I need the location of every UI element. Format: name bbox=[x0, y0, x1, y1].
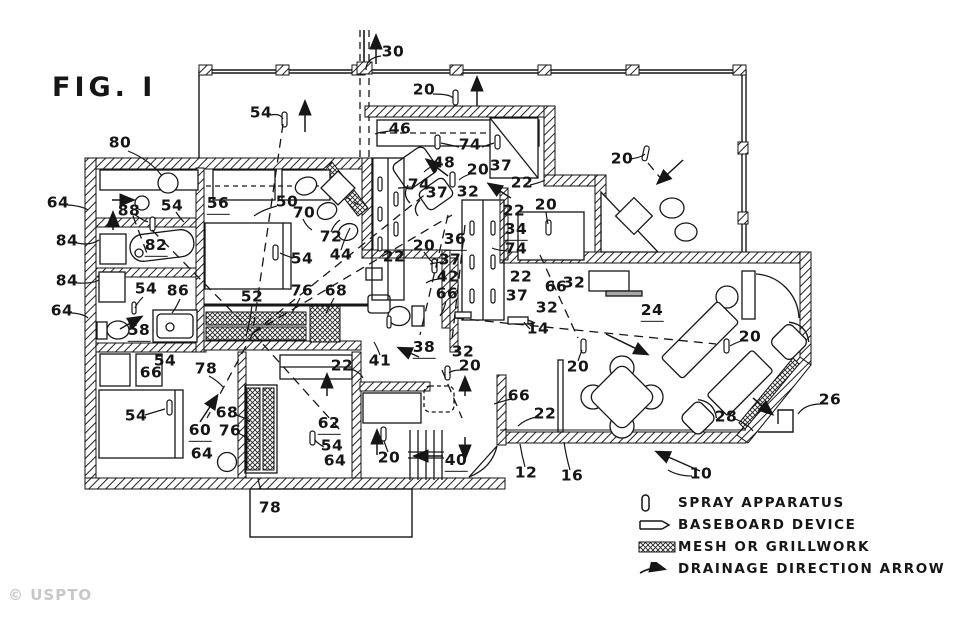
ref-label-44: 44 bbox=[330, 247, 353, 263]
spray-apparatus-icon bbox=[638, 493, 678, 513]
mesh-grillwork-icon bbox=[638, 540, 678, 554]
legend-label: MESH OR GRILLWORK bbox=[678, 539, 870, 555]
ref-label-68: 68 bbox=[216, 405, 239, 421]
ref-label-20: 20 bbox=[567, 359, 590, 375]
ref-label-22: 22 bbox=[503, 203, 526, 219]
ref-label-30: 30 bbox=[382, 44, 405, 60]
ref-label-20: 20 bbox=[413, 82, 436, 98]
ref-label-22: 22 bbox=[383, 249, 406, 265]
ref-label-20: 20 bbox=[611, 151, 634, 167]
ref-label-68: 68 bbox=[325, 283, 348, 299]
ref-label-54: 54 bbox=[125, 408, 148, 424]
ref-label-64: 64 bbox=[51, 303, 74, 319]
ref-label-20: 20 bbox=[535, 197, 558, 213]
ref-label-14: 14 bbox=[527, 321, 550, 337]
ref-label-74: 74 bbox=[505, 241, 528, 257]
ref-label-20: 20 bbox=[378, 450, 401, 466]
ref-label-20: 20 bbox=[739, 329, 762, 345]
ref-label-84: 84 bbox=[56, 233, 79, 249]
ref-label-64: 64 bbox=[324, 453, 347, 469]
ref-label-28: 28 bbox=[715, 409, 738, 425]
ref-label-58: 58 bbox=[128, 323, 151, 342]
ref-label-22: 22 bbox=[510, 269, 533, 285]
ref-label-22: 22 bbox=[534, 406, 557, 422]
legend-label: BASEBOARD DEVICE bbox=[678, 517, 856, 533]
ref-label-32: 32 bbox=[457, 184, 480, 200]
ref-label-66: 66 bbox=[436, 286, 459, 302]
patent-figure: FIG. I 305420208046744820372274373222206… bbox=[0, 0, 962, 619]
uspto-watermark: © USPTO bbox=[8, 586, 92, 604]
ref-label-72: 72 bbox=[320, 229, 343, 245]
ref-label-64: 64 bbox=[47, 195, 70, 211]
ref-label-52: 52 bbox=[241, 289, 264, 305]
legend: SPRAY APPARATUS BASEBOARD DEVICE MESH OR… bbox=[638, 492, 945, 580]
ref-label-10: 10 bbox=[690, 466, 713, 482]
ref-label-78: 78 bbox=[195, 361, 218, 377]
ref-label-88: 88 bbox=[118, 203, 141, 219]
ref-label-64: 64 bbox=[191, 446, 214, 462]
ref-label-20: 20 bbox=[413, 238, 436, 254]
ref-label-60: 60 bbox=[189, 423, 212, 442]
ref-label-74: 74 bbox=[459, 137, 482, 153]
ref-label-66: 66 bbox=[140, 365, 163, 381]
legend-item-spray: SPRAY APPARATUS bbox=[638, 492, 945, 513]
ref-label-38: 38 bbox=[413, 340, 436, 359]
ref-label-54: 54 bbox=[161, 198, 184, 214]
ref-label-32: 32 bbox=[536, 300, 559, 316]
ref-label-82: 82 bbox=[145, 238, 168, 257]
ref-label-34: 34 bbox=[505, 222, 528, 241]
legend-item-arrow: DRAINAGE DIRECTION ARROW bbox=[638, 558, 945, 579]
ref-label-54: 54 bbox=[291, 251, 314, 267]
ref-label-20: 20 bbox=[467, 162, 490, 178]
ref-label-66: 66 bbox=[508, 388, 531, 404]
ref-label-56: 56 bbox=[207, 196, 230, 215]
legend-item-baseboard: BASEBOARD DEVICE bbox=[638, 514, 945, 535]
ref-label-42: 42 bbox=[437, 269, 460, 285]
ref-label-20: 20 bbox=[459, 358, 482, 374]
ref-label-80: 80 bbox=[109, 135, 132, 151]
ref-label-37: 37 bbox=[439, 252, 462, 268]
ref-label-41: 41 bbox=[369, 353, 392, 369]
ref-label-37: 37 bbox=[426, 185, 449, 201]
ref-label-40: 40 bbox=[445, 453, 468, 472]
ref-label-37: 37 bbox=[490, 158, 513, 174]
ref-label-46: 46 bbox=[389, 121, 412, 137]
ref-label-12: 12 bbox=[515, 465, 538, 481]
ref-label-86: 86 bbox=[167, 283, 190, 299]
ref-label-22: 22 bbox=[511, 175, 534, 191]
ref-label-76: 76 bbox=[291, 283, 314, 299]
ref-label-16: 16 bbox=[561, 468, 584, 484]
legend-item-mesh: MESH OR GRILLWORK bbox=[638, 536, 945, 557]
ref-label-78: 78 bbox=[259, 500, 282, 515]
ref-label-84: 84 bbox=[56, 273, 79, 289]
ref-label-62: 62 bbox=[318, 416, 341, 435]
ref-label-37: 37 bbox=[506, 288, 529, 304]
ref-label-48: 48 bbox=[433, 155, 456, 171]
ref-label-26: 26 bbox=[819, 392, 842, 408]
ref-label-32: 32 bbox=[563, 275, 586, 291]
legend-label: SPRAY APPARATUS bbox=[678, 495, 845, 511]
ref-label-36: 36 bbox=[444, 232, 467, 251]
drainage-arrow-icon bbox=[638, 562, 678, 576]
ref-label-24: 24 bbox=[641, 303, 664, 322]
ref-label-22: 22 bbox=[331, 358, 354, 374]
baseboard-device-icon bbox=[638, 517, 678, 533]
ref-label-54: 54 bbox=[250, 105, 273, 121]
legend-label: DRAINAGE DIRECTION ARROW bbox=[678, 561, 945, 577]
ref-label-54: 54 bbox=[135, 281, 158, 297]
ref-label-70: 70 bbox=[293, 205, 316, 221]
ref-label-76: 76 bbox=[219, 423, 242, 439]
